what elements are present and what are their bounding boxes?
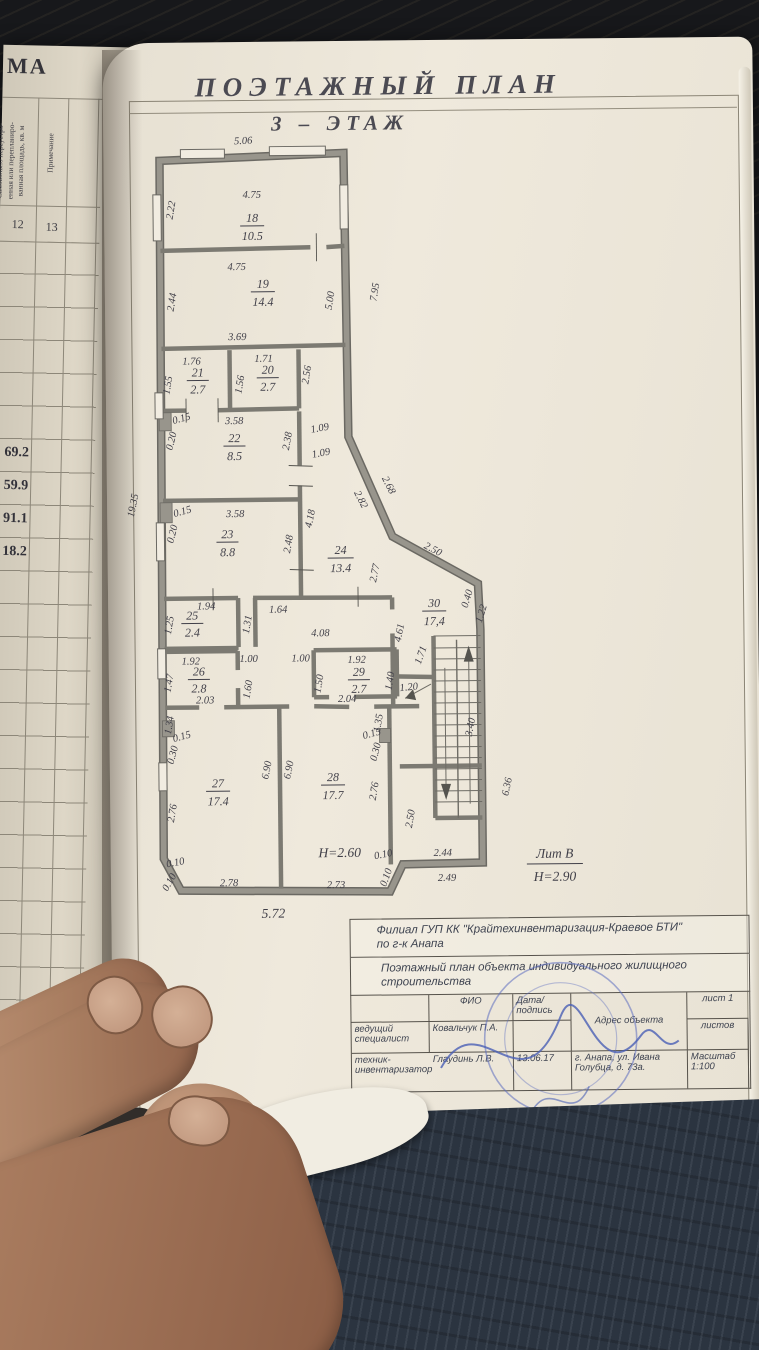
dim-label: 2.03 — [196, 695, 214, 706]
dim-label: 3.40 — [464, 716, 479, 738]
stair-arrows — [405, 646, 476, 801]
table-value: 91.1 — [0, 511, 28, 528]
table-rows — [0, 241, 99, 1093]
scale-cell: Масштаб 1:100 — [688, 1049, 749, 1088]
scale-label: Масштаб — [691, 1050, 735, 1061]
dim-label: 4.18 — [304, 508, 319, 529]
dim-label: 1.00 — [291, 653, 310, 664]
floor-plan-sheet: ПОЭТАЖНЫЙ ПЛАН 3 – ЭТАЖ — [102, 37, 759, 1146]
room-number: 20 — [262, 363, 274, 377]
dim-label: 1.09 — [310, 421, 331, 435]
room-area: 2.4 — [185, 625, 200, 639]
date-sign-header: Дата/ подпись — [513, 993, 571, 1021]
dim-label: 1.92 — [181, 656, 200, 667]
technician-name: Глаудинь Л.В. — [430, 1052, 514, 1091]
dim-label: 2.04 — [338, 694, 357, 705]
dim-label: 2.68 — [379, 475, 397, 497]
dim-label: 1.76 — [182, 356, 201, 367]
organization-box: Филиал ГУП КК "Крайтехинвентаризация-Кра… — [349, 915, 749, 958]
dim-label: 0.10 — [165, 856, 186, 870]
dim-label: 3.58 — [224, 416, 244, 427]
dim-label: 2.82 — [351, 489, 369, 511]
room-labels: 18 10.5 19 14.4 21 2.7 20 2.7 22 8.5 23 … — [177, 209, 448, 809]
floor-plan-drawing: 18 10.5 19 14.4 21 2.7 20 2.7 22 8.5 23 … — [123, 126, 661, 932]
dim-label: 2.49 — [438, 873, 457, 884]
dim-label: 4.75 — [227, 262, 245, 273]
dim-label: 1.50 — [313, 673, 327, 694]
stamp-block: Филиал ГУП КК "Крайтехинвентаризация-Кра… — [349, 915, 751, 1093]
table-value: 59.9 — [0, 478, 28, 495]
dim-label: 2.44 — [434, 848, 453, 859]
dim-label: 2.44 — [166, 292, 180, 313]
dim-label: 0.20 — [165, 523, 180, 544]
column-number: 13 — [45, 220, 57, 235]
dim-label: 5.00 — [324, 290, 338, 311]
dim-label: 3.69 — [227, 332, 247, 343]
dim-label: 1.64 — [269, 605, 288, 616]
dim-label: 5.06 — [234, 136, 254, 148]
room-area: 14.4 — [252, 295, 273, 309]
dim-label: 2.78 — [220, 878, 239, 889]
room-area: 8.5 — [227, 449, 242, 463]
survey-date: 13.06.17 — [514, 1051, 572, 1090]
down-arrow — [441, 784, 451, 800]
dim-label: 1.09 — [311, 446, 332, 460]
dim-label: 2.38 — [281, 430, 295, 451]
dim-label: 1.00 — [239, 654, 258, 665]
room-number: 24 — [334, 543, 346, 557]
dim-label: 2.73 — [327, 880, 345, 891]
room-number: 19 — [257, 277, 269, 291]
dim-label: 0.30 — [166, 744, 181, 765]
dim-label: 1.71 — [413, 645, 429, 666]
room-area: 2.7 — [260, 380, 276, 394]
room-area: 13.4 — [330, 561, 351, 575]
table-value: 69.2 — [0, 445, 29, 462]
dim-label: 2.76 — [166, 803, 180, 824]
dim-label: 1.94 — [197, 601, 216, 612]
dim-label: 6.90 — [282, 759, 297, 780]
dim-label: 6.90 — [260, 759, 275, 780]
stamp-table: ФИО Дата/ подпись Адрес объекта лист 1 в… — [350, 991, 751, 1092]
room-number: 27 — [212, 776, 225, 790]
room-height-note: H=2.60 — [317, 845, 361, 860]
dim-label: 4.61 — [393, 623, 407, 643]
signature-cell — [514, 1020, 572, 1052]
dim-label: 1.20 — [399, 681, 419, 694]
lead-specialist-name: Ковальчук П.А. — [430, 1021, 514, 1053]
dim-label: 1.92 — [347, 655, 366, 666]
dim-label: 2.22 — [165, 200, 179, 221]
dim-label: 1.56 — [233, 374, 247, 395]
room-area: 2.7 — [190, 382, 206, 396]
building-height: Н=2.90 — [533, 869, 577, 884]
dim-label: 1.71 — [254, 354, 272, 365]
room-number: 30 — [427, 596, 440, 610]
dim-label: 1.60 — [242, 679, 256, 700]
dim-label: 7.95 — [368, 282, 382, 302]
dim-label: 0.20 — [164, 430, 179, 451]
column-header-rotated: Примечание — [45, 93, 58, 213]
dim-label: 0.15 — [172, 504, 193, 520]
document-title-box: Поэтажный план объекта индивидуального ж… — [350, 953, 750, 995]
column-header-rotated: Самовольно переустро- енная или переплан… — [0, 100, 28, 221]
dim-label: 0.15 — [362, 726, 383, 742]
dim-label: 4.75 — [243, 190, 261, 201]
room-number: 18 — [246, 211, 258, 225]
dim-label: 0.15 — [171, 411, 192, 427]
room-area: 17,4 — [424, 614, 445, 628]
room-number: 28 — [327, 770, 339, 784]
room-area: 8.8 — [220, 545, 235, 559]
dim-label: 6.36 — [500, 776, 515, 797]
scale-value: 1:100 — [691, 1061, 715, 1072]
room-area: 2.8 — [191, 681, 206, 695]
room-number: 29 — [353, 665, 365, 679]
empty-cell — [351, 995, 429, 1023]
column-number: 12 — [12, 217, 24, 232]
dim-label: 0.30 — [369, 741, 384, 762]
sheet-title: ПОЭТАЖНЫЙ ПЛАН — [195, 69, 562, 104]
room-area: 10.5 — [242, 229, 263, 243]
dim-label: 2.48 — [282, 533, 296, 554]
room-area: 17.7 — [323, 788, 345, 802]
room-number: 23 — [221, 527, 233, 541]
dim-label: 1.55 — [161, 375, 175, 395]
dim-label: 1.25 — [163, 615, 177, 635]
address-header: Адрес объекта — [571, 992, 688, 1051]
dim-label: 2.77 — [368, 562, 383, 583]
organization-city: по г-к Анапа — [377, 938, 444, 951]
dim-label: 1.31 — [241, 615, 255, 635]
fio-header: ФИО — [429, 994, 513, 1022]
liter-label: Лит В — [535, 846, 573, 861]
dim-label: 2.56 — [300, 364, 314, 385]
sheet-number: лист 1 — [687, 991, 748, 1019]
header-line: Примечание — [45, 93, 58, 213]
dim-label: 1.34 — [163, 715, 177, 736]
room-number: 21 — [192, 365, 204, 379]
dim-label: 1.47 — [163, 673, 177, 694]
organization-name: Филиал ГУП КК "Крайтехинвентаризация-Кра… — [376, 921, 682, 936]
header-line: ванная площадь, кв. м — [15, 101, 28, 221]
table-value: 18.2 — [0, 544, 27, 561]
role-lead-specialist: ведущий специалист — [352, 1022, 430, 1054]
dim-label: 5.72 — [261, 906, 285, 921]
role-technician: техник- инвентаризатор — [352, 1053, 430, 1092]
dim-label: 0.40 — [460, 588, 476, 610]
dimension-ticks — [184, 233, 358, 611]
room-number: 22 — [228, 431, 240, 445]
photo-of-floor-plan-document: МА Самовольно переустро- енная или переп… — [0, 0, 759, 1350]
liter-annotation: Лит В Н=2.90 — [527, 845, 583, 884]
dim-label: 3.58 — [225, 509, 245, 520]
left-page-partial-title: МА — [7, 53, 48, 80]
sheets-count: листов — [687, 1018, 748, 1050]
dim-label: 2.50 — [404, 808, 418, 829]
dim-label: 4.08 — [311, 628, 330, 639]
object-address: г. Анапа, ул. Ивана Голубца, д. 73а. — [572, 1050, 688, 1089]
dim-label: 2.76 — [368, 780, 382, 801]
room-area: 17.4 — [208, 794, 229, 808]
